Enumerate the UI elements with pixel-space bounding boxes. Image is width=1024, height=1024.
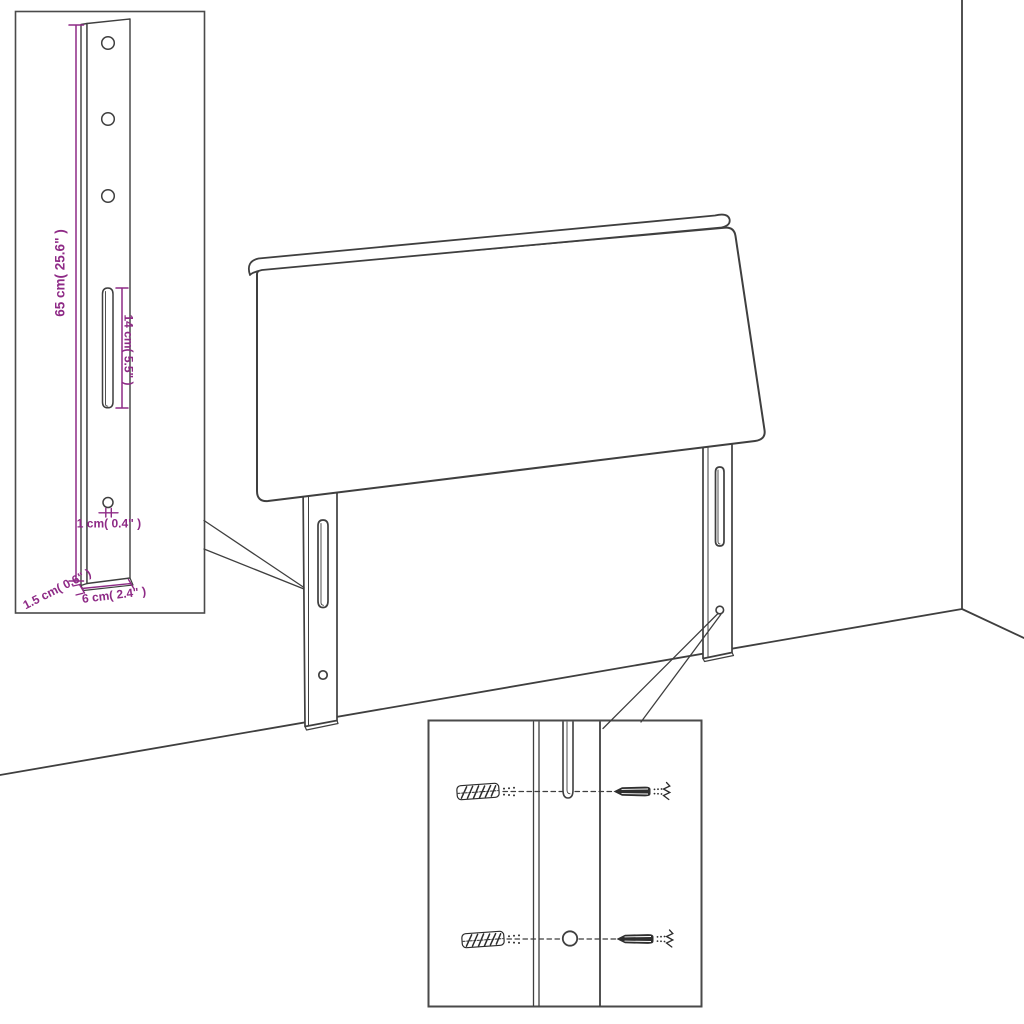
right-leg-slot bbox=[716, 467, 725, 546]
slot-dimension-label: 14 cm( 5.5" ) bbox=[121, 314, 135, 385]
right-leg bbox=[703, 436, 734, 662]
leg-hole-magnified bbox=[563, 931, 577, 945]
bracket-hole-2 bbox=[102, 113, 115, 126]
left-leg-screw-hole bbox=[319, 671, 327, 679]
bracket-hole-1 bbox=[102, 37, 115, 50]
floor-line-right bbox=[962, 609, 1024, 638]
headboard-panel bbox=[249, 215, 765, 502]
bracket-slot bbox=[103, 288, 114, 408]
mounting-detail-inset bbox=[429, 721, 702, 1007]
bracket-inset-leader-lines bbox=[204, 521, 304, 590]
bracket-hole-3 bbox=[102, 190, 115, 203]
left-leg bbox=[303, 477, 338, 730]
bracket-small-hole bbox=[103, 498, 113, 508]
bracket-side-face bbox=[81, 24, 87, 586]
height-dimension-label: 65 cm( 25.6" ) bbox=[53, 229, 68, 316]
panel-front-face bbox=[257, 228, 765, 501]
left-leg-slot bbox=[318, 520, 328, 608]
assembly-diagram-page: 65 cm( 25.6" ) 14 cm( 5.5" ) 1 cm( 0.4" … bbox=[0, 0, 1024, 1024]
hole-dimension-label: 1 cm( 0.4" ) bbox=[77, 517, 141, 531]
right-leg-screw-hole bbox=[716, 606, 724, 614]
leader-lines bbox=[204, 521, 721, 729]
leg-slot-magnified bbox=[563, 722, 573, 798]
bracket-detail-inset: 65 cm( 25.6" ) 14 cm( 5.5" ) 1 cm( 0.4" … bbox=[16, 12, 205, 614]
headboard-assembly-diagram: 65 cm( 25.6" ) 14 cm( 5.5" ) 1 cm( 0.4" … bbox=[0, 0, 1024, 1024]
